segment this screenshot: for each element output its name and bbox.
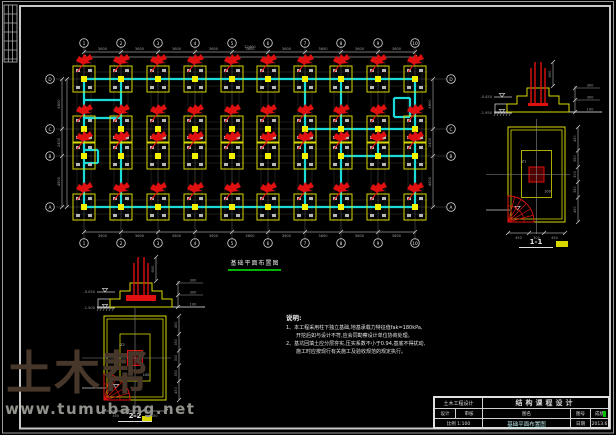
watermark-url: www.tumubang.net — [5, 400, 195, 418]
foundation-beams — [84, 79, 415, 207]
svg-text:5: 5 — [231, 41, 234, 47]
notes-title: 说明: — [286, 312, 438, 322]
titleblock-design: 设计 — [435, 409, 456, 419]
svg-text:4800: 4800 — [57, 99, 61, 109]
svg-text:3600: 3600 — [392, 47, 402, 51]
svg-text:10: 10 — [412, 241, 418, 247]
notes-line: 开挖后如与设计不符,应会同勘察设计单位协商处理。 — [286, 332, 438, 340]
svg-text:300: 300 — [190, 291, 198, 295]
notes-lines: 1、本工程采用柱下独立基础,地基承载力特征值fak=180kPa, 开挖后如与设… — [286, 324, 438, 356]
svg-text:3600: 3600 — [282, 47, 292, 51]
svg-text:D: D — [449, 77, 453, 83]
svg-text:-1.950: -1.950 — [480, 111, 492, 115]
svg-text:450: 450 — [573, 136, 577, 142]
svg-text:300: 300 — [190, 279, 198, 283]
titleblock-grade: 成绩 — [591, 409, 608, 419]
svg-text:-0.050: -0.050 — [83, 290, 95, 294]
svg-text:C: C — [48, 127, 51, 133]
svg-text:3600: 3600 — [209, 234, 219, 238]
svg-text:3600: 3600 — [135, 234, 145, 238]
svg-text:100: 100 — [190, 303, 198, 307]
svg-text:3600: 3600 — [209, 47, 219, 51]
svg-text:7: 7 — [304, 241, 307, 247]
svg-text:1: 1 — [83, 241, 86, 247]
svg-text:3600: 3600 — [392, 234, 402, 238]
svg-text:A: A — [450, 205, 453, 211]
svg-text:3: 3 — [157, 241, 160, 247]
detail-section-right: 300300100600-0.450-1.950 — [480, 60, 602, 116]
detail-tag-right — [556, 241, 568, 247]
svg-text:5: 5 — [231, 241, 234, 247]
revision-table — [4, 5, 17, 62]
svg-text:3600: 3600 — [98, 234, 108, 238]
svg-text:-1.500: -1.500 — [83, 306, 95, 310]
svg-text:2400: 2400 — [428, 137, 432, 147]
svg-text:450: 450 — [573, 207, 577, 213]
notes-line: 施工时应按现行有关施工及验收规范的规定执行。 — [286, 348, 438, 356]
notes-block: 说明: 1、本工程采用柱下独立基础,地基承载力特征值fak=180kPa, 开挖… — [286, 312, 438, 356]
svg-text:350: 350 — [174, 370, 178, 376]
svg-text:300: 300 — [587, 84, 595, 88]
svg-text:300: 300 — [587, 96, 595, 100]
titleblock-drawing-name: 基础平面布置图 — [507, 420, 546, 428]
svg-text:4: 4 — [194, 41, 197, 47]
plan-title-underline — [228, 269, 281, 271]
svg-text:3600: 3600 — [282, 234, 292, 238]
notes-line: 2、基坑回填土应分层夯实,压实系数不小于0.94,基底不得扰动, — [286, 340, 438, 348]
grade-tick — [603, 411, 606, 417]
svg-text:3: 3 — [157, 41, 160, 47]
svg-text:10: 10 — [412, 41, 418, 47]
title-block: 土木工程设计 结构课程设计 设计 审核 图名 图号 成绩 比例 1:100 基础… — [433, 396, 610, 429]
titleblock-main-title: 结构课程设计 — [516, 398, 576, 408]
svg-text:8: 8 — [340, 241, 343, 247]
svg-text:6: 6 — [267, 41, 270, 47]
notes-line: 1、本工程采用柱下独立基础,地基承载力特征值fak=180kPa, — [286, 324, 438, 332]
svg-text:3600: 3600 — [318, 47, 328, 51]
svg-text:3600: 3600 — [245, 234, 255, 238]
titleblock-date-value: 2013.6 — [591, 419, 608, 429]
svg-text:3600: 3600 — [172, 47, 182, 51]
detail-plan-right: 450350300350450450300450JZ1100 — [486, 119, 580, 240]
svg-text:9: 9 — [377, 241, 380, 247]
svg-text:1: 1 — [83, 41, 86, 47]
svg-text:600: 600 — [548, 70, 552, 78]
svg-text:2: 2 — [120, 41, 123, 47]
svg-text:3600: 3600 — [318, 234, 328, 238]
svg-text:3600: 3600 — [355, 234, 365, 238]
svg-text:4800: 4800 — [57, 176, 61, 186]
svg-text:4: 4 — [194, 241, 197, 247]
detail-section-bottom: 300300100600-0.050-1.500 — [83, 255, 205, 311]
svg-text:300: 300 — [174, 355, 178, 361]
svg-text:100: 100 — [544, 190, 550, 194]
titleblock-figname: 图名 — [483, 409, 571, 419]
titleblock-date-label: 日期 — [571, 419, 591, 429]
titleblock-check: 审核 — [456, 409, 483, 419]
svg-text:3600: 3600 — [135, 47, 145, 51]
titleblock-figno: 图号 — [571, 409, 591, 419]
watermark-brand: 土木帮 — [6, 350, 150, 396]
svg-text:8: 8 — [340, 41, 343, 47]
plan-title: 基础平面布置图 — [210, 258, 300, 267]
svg-text:4800: 4800 — [428, 99, 432, 109]
svg-text:600: 600 — [151, 265, 155, 273]
svg-text:2: 2 — [120, 241, 123, 247]
svg-text:C: C — [449, 127, 452, 133]
svg-text:B: B — [450, 154, 453, 160]
cad-viewport: 3600360036003600360036003600360036003240… — [0, 0, 616, 435]
svg-text:3600: 3600 — [172, 234, 182, 238]
svg-text:7: 7 — [304, 41, 307, 47]
svg-text:32400: 32400 — [244, 45, 256, 49]
svg-text:D: D — [48, 77, 52, 83]
svg-text:300: 300 — [573, 171, 577, 177]
svg-text:450: 450 — [174, 322, 178, 328]
svg-text:6: 6 — [267, 241, 270, 247]
svg-text:3600: 3600 — [355, 47, 365, 51]
svg-text:3600: 3600 — [98, 47, 108, 51]
svg-text:350: 350 — [174, 339, 178, 345]
svg-text:9: 9 — [377, 41, 380, 47]
axis-bubbles: 1122334455667788991010DDCCBBAA — [46, 39, 456, 248]
detail-label-1-1: 1-1 — [519, 238, 553, 248]
svg-text:4800: 4800 — [428, 176, 432, 186]
titleblock-project: 土木工程设计 — [435, 398, 483, 409]
svg-text:100: 100 — [587, 108, 595, 112]
svg-text:A: A — [49, 205, 52, 211]
svg-text:350: 350 — [573, 187, 577, 193]
svg-text:350: 350 — [573, 156, 577, 162]
svg-text:JZ1: JZ1 — [520, 160, 526, 164]
titleblock-scale: 比例 1:100 — [435, 419, 483, 429]
svg-text:B: B — [49, 154, 52, 160]
svg-text:450: 450 — [174, 387, 178, 393]
svg-text:2400: 2400 — [57, 137, 61, 147]
svg-text:-0.450: -0.450 — [480, 95, 492, 99]
